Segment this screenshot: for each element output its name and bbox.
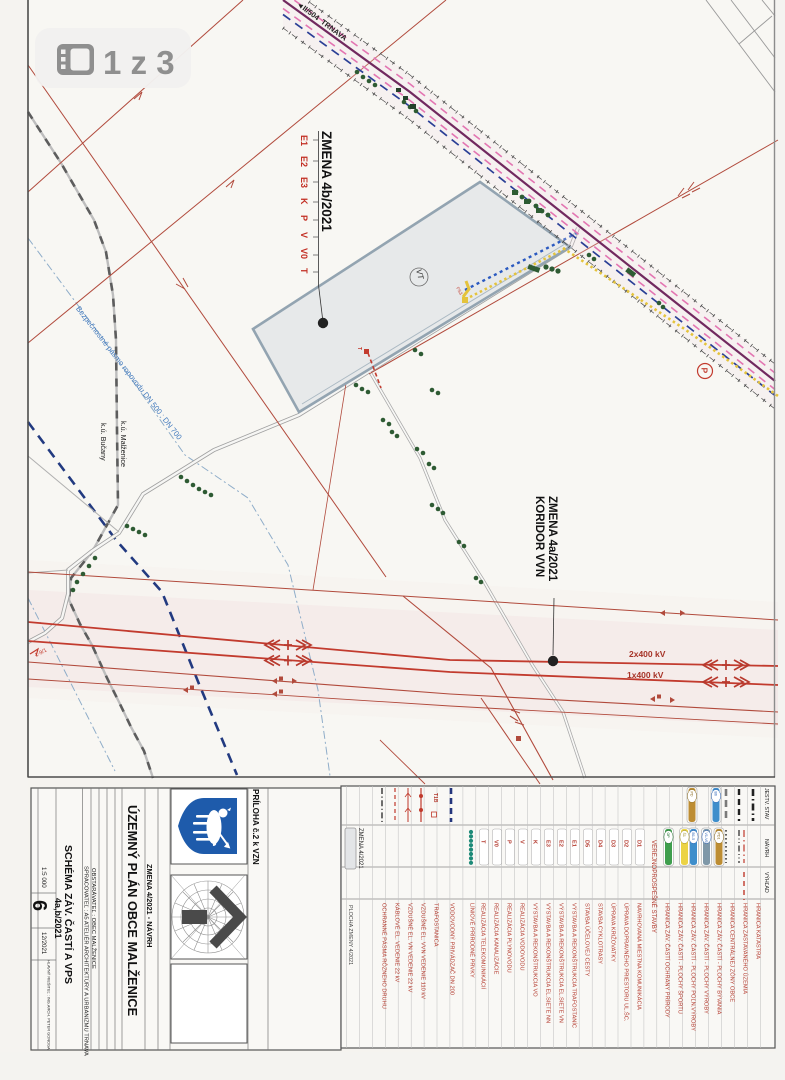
svg-text:12/2021: 12/2021 (40, 932, 47, 955)
svg-text:V: V (519, 840, 525, 844)
svg-text:PRÍLOHA č.2 k VZN: PRÍLOHA č.2 k VZN (251, 789, 261, 865)
svg-text:VÝSTAVBA A REKONŠTRUKCIA EL.SI: VÝSTAVBA A REKONŠTRUKCIA EL.SIETE NN (545, 903, 552, 1023)
svg-text:6: 6 (28, 900, 50, 911)
svg-text:k.ú. Bučany: k.ú. Bučany (99, 423, 108, 461)
svg-text:ZMENA 4/2021: ZMENA 4/2021 (357, 828, 363, 869)
svg-text:4a,b/2021: 4a,b/2021 (53, 898, 63, 939)
svg-text:HRANICA ZASTAVANÉHO ÚZEMIA: HRANICA ZASTAVANÉHO ÚZEMIA (742, 903, 749, 994)
svg-text:VZDUŠNÉ EL. VVN VEDENIE 110 kV: VZDUŠNÉ EL. VVN VEDENIE 110 kV (420, 903, 427, 999)
svg-text:REALIZÁCIA KANALIZÁCIE: REALIZÁCIA KANALIZÁCIE (493, 903, 500, 975)
svg-text:KORIDOR VVN: KORIDOR VVN (533, 496, 545, 577)
svg-text:ZMENA 4/2021 - NÁVRH: ZMENA 4/2021 - NÁVRH (145, 864, 154, 948)
svg-text:K: K (532, 840, 538, 844)
svg-text:K: K (299, 198, 309, 205)
svg-text:ÚPRAVA KRIŽOVATKY: ÚPRAVA KRIŽOVATKY (610, 903, 618, 962)
svg-text:VEREJNOPROSPEŠNÉ STAVBY: VEREJNOPROSPEŠNÉ STAVBY (650, 840, 657, 933)
svg-text:P: P (299, 215, 309, 221)
svg-text:P: P (700, 368, 710, 374)
svg-text:P: P (506, 840, 512, 844)
svg-text:VÝHĽAD: VÝHĽAD (763, 872, 770, 893)
svg-text:HRANICA ZÁV. ČASTÍ - PLOCHY BÝ: HRANICA ZÁV. ČASTÍ - PLOCHY BÝVANIA (716, 903, 723, 1015)
svg-text:E2: E2 (558, 840, 564, 847)
svg-text:VÝSTAVBA A REKONŠTRUKCIA EL.SI: VÝSTAVBA A REKONŠTRUKCIA EL.SIETE VN (558, 903, 565, 1023)
svg-text:E1: E1 (299, 135, 309, 146)
svg-text:ÚZEMNÝ PLÁN OBCE MALŽENICE: ÚZEMNÝ PLÁN OBCE MALŽENICE (125, 805, 140, 1017)
svg-text:HRANICA KATASTRA: HRANICA KATASTRA (755, 903, 761, 959)
svg-text:VZDUŠNÉ EL. VN VEDENIE 22 kV: VZDUŠNÉ EL. VN VEDENIE 22 kV (407, 903, 414, 993)
svg-text:T: T (480, 840, 486, 844)
svg-text:HRANICA ZÁV. ČASTÍ - PLOCHY VÝ: HRANICA ZÁV. ČASTÍ - PLOCHY VÝROBY (703, 903, 710, 1014)
svg-text:SPRACOVATEĽ : A5 ATELIÉR ARCHI: SPRACOVATEĽ : A5 ATELIÉR ARCHITEKTÚRY A … (83, 866, 90, 1056)
svg-text:REALIZÁCIA PLYNOVODU: REALIZÁCIA PLYNOVODU (506, 903, 513, 973)
svg-text:2x400 kV: 2x400 kV (629, 649, 666, 659)
svg-text:HRANICA ZÁV. ČASTÍ - PLOCHY PO: HRANICA ZÁV. ČASTÍ - PLOCHY POĽN.VÝROBY (690, 903, 697, 1031)
svg-text:OBSTARÁVATEĽ : OBEC MALŽENICE: OBSTARÁVATEĽ : OBEC MALŽENICE (90, 868, 98, 969)
svg-text:OP: OP (666, 833, 670, 839)
svg-text:LÍNIOVÉ PRÍRODNÉ PRVKY: LÍNIOVÉ PRÍRODNÉ PRVKY (469, 903, 476, 978)
svg-text:HRANICA ZÁV. ČASTÍ OCHRANY PRÍ: HRANICA ZÁV. ČASTÍ OCHRANY PRÍRODY (664, 903, 671, 1018)
svg-text:V: V (299, 232, 309, 238)
svg-text:D2: D2 (623, 840, 629, 847)
svg-text:T: T (299, 268, 309, 274)
svg-text:HRANICA ZÁV. ČASTÍ - PLOCHY ŠP: HRANICA ZÁV. ČASTÍ - PLOCHY ŠPORTU (677, 903, 684, 1014)
svg-text:HRANICA CENTRÁLNEJ ZÓNY OBCE: HRANICA CENTRÁLNEJ ZÓNY OBCE (729, 903, 736, 1002)
svg-text:ÚPRAVA DOPRAVNÉHO PRIESTORU UL: ÚPRAVA DOPRAVNÉHO PRIESTORU UL.ŠC. (623, 903, 630, 1022)
svg-text:OCHRANNÉ PÁSMA RÔZNEHO DRUHU: OCHRANNÉ PÁSMA RÔZNEHO DRUHU (381, 903, 388, 1009)
svg-text:1x400 kV: 1x400 kV (627, 670, 664, 680)
svg-text:REALIZÁCIA TELEKOMUNIKÁCIÍ: REALIZÁCIA TELEKOMUNIKÁCIÍ (480, 903, 487, 990)
svg-text:STAVBA CYKLOTRASY: STAVBA CYKLOTRASY (597, 903, 603, 964)
svg-text:k.ú. Malženice: k.ú. Malženice (119, 421, 128, 467)
svg-text:1:5 000: 1:5 000 (40, 867, 47, 888)
svg-text:VÝSTAVBA A REKONŠTRUKCIA TRAFO: VÝSTAVBA A REKONŠTRUKCIA TRAFOSTANÍC (571, 903, 578, 1028)
svg-text:T: T (356, 347, 362, 350)
svg-text:PD1: PD1 (717, 833, 721, 840)
svg-text:E1: E1 (571, 840, 577, 847)
svg-text:NAVRHOVANÁ MIESTNA KOMUNIKÁCIA: NAVRHOVANÁ MIESTNA KOMUNIKÁCIA (636, 903, 643, 1010)
svg-text:PLOCHA ZMENY 4/2021: PLOCHA ZMENY 4/2021 (347, 905, 353, 965)
svg-text:ZMENA 4b/2021: ZMENA 4b/2021 (319, 131, 334, 232)
svg-text:HLAVNÝ RIEŠITEĽ : ING.ARCH. PE: HLAVNÝ RIEŠITEĽ : ING.ARCH. PETER GONOGA (47, 960, 52, 1050)
svg-text:T1B: T1B (432, 793, 438, 803)
svg-text:KÁBLOVÉ EL. VEDENIE 22 kV: KÁBLOVÉ EL. VEDENIE 22 kV (394, 903, 401, 983)
svg-text:V1-V6: V1-V6 (704, 833, 708, 843)
svg-text:1 z 3: 1 z 3 (103, 44, 175, 81)
svg-text:TRAFOSTANICA: TRAFOSTANICA (433, 903, 439, 947)
svg-text:ZMENA 4a/2021: ZMENA 4a/2021 (546, 496, 558, 582)
svg-text:NÁVRH: NÁVRH (763, 839, 770, 857)
svg-text:JESTV. STAV: JESTV. STAV (763, 788, 769, 820)
svg-text:REALIZÁCIA VODOVODU: REALIZÁCIA VODOVODU (519, 903, 526, 971)
svg-text:E2: E2 (299, 156, 309, 167)
svg-text:D1: D1 (636, 840, 642, 847)
svg-text:B1-5: B1-5 (691, 833, 695, 841)
svg-text:B6: B6 (714, 792, 718, 796)
svg-text:VODOVODNÝ PRIVÁDZAČ DN 200: VODOVODNÝ PRIVÁDZAČ DN 200 (449, 903, 456, 995)
svg-text:STAVBA ÚČELOVEJ CESTY: STAVBA ÚČELOVEJ CESTY (584, 903, 591, 977)
svg-text:PD: PD (690, 792, 694, 797)
svg-text:VÝSTAVBA A REKONŠTRUKCIA VO: VÝSTAVBA A REKONŠTRUKCIA VO (532, 903, 539, 997)
svg-text:Š1: Š1 (682, 833, 687, 837)
svg-text:D4: D4 (597, 840, 603, 848)
svg-text:D3: D3 (610, 840, 616, 847)
svg-text:D5: D5 (584, 840, 590, 847)
svg-text:V0: V0 (299, 248, 309, 259)
svg-text:E3: E3 (545, 840, 551, 847)
svg-text:V0: V0 (493, 840, 499, 847)
svg-text:E3: E3 (299, 177, 309, 188)
